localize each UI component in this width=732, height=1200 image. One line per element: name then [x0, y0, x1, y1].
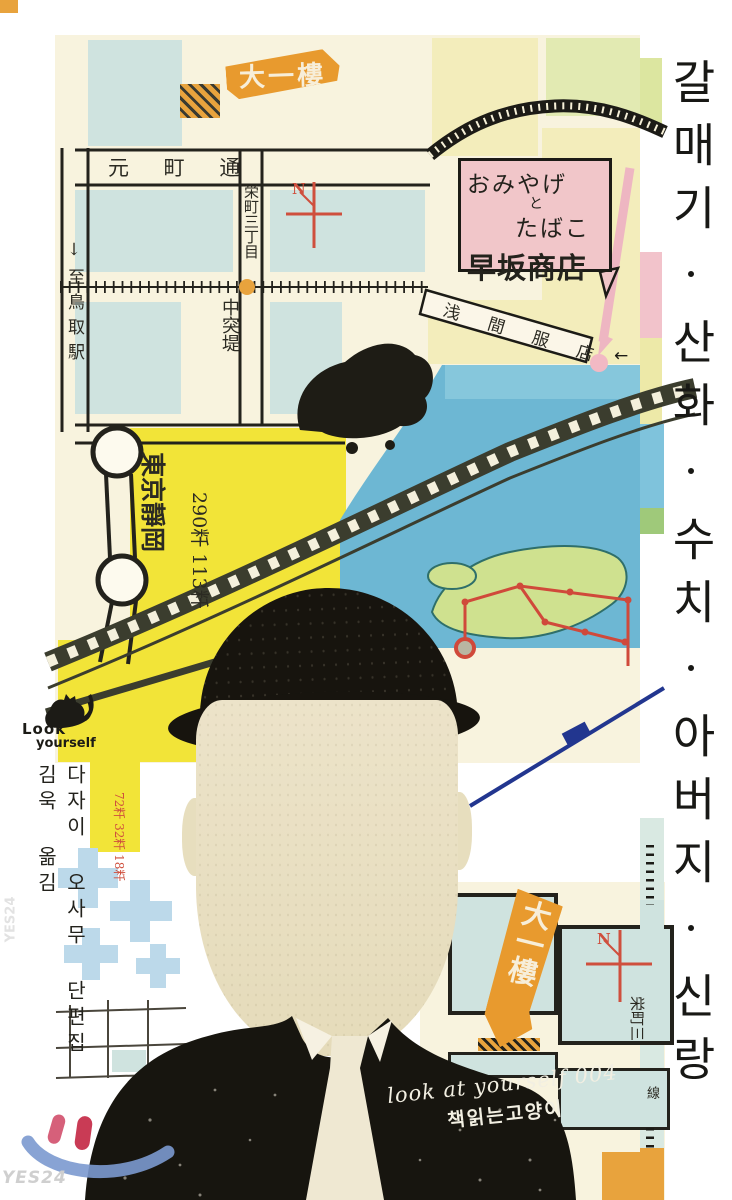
book-cover: 元 町 通 栄町三丁目 中突堤 ↓至鳥取駅 東京靜岡 290粁 113粁 72粁…: [0, 0, 732, 1200]
look-yourself-logo: Look yourself: [22, 686, 100, 762]
watermark-side-text: YES24: [3, 897, 18, 943]
author-credit: 다자이 오사무 단편집 김욱 옮김: [56, 764, 90, 1104]
logo-line2: yourself: [36, 736, 96, 751]
watermark-text: YES24: [2, 1168, 67, 1188]
book-title: 갈매기·산화·수치·아버지·신랑: [660, 58, 722, 1168]
suit-and-shirt: [0, 0, 732, 1200]
